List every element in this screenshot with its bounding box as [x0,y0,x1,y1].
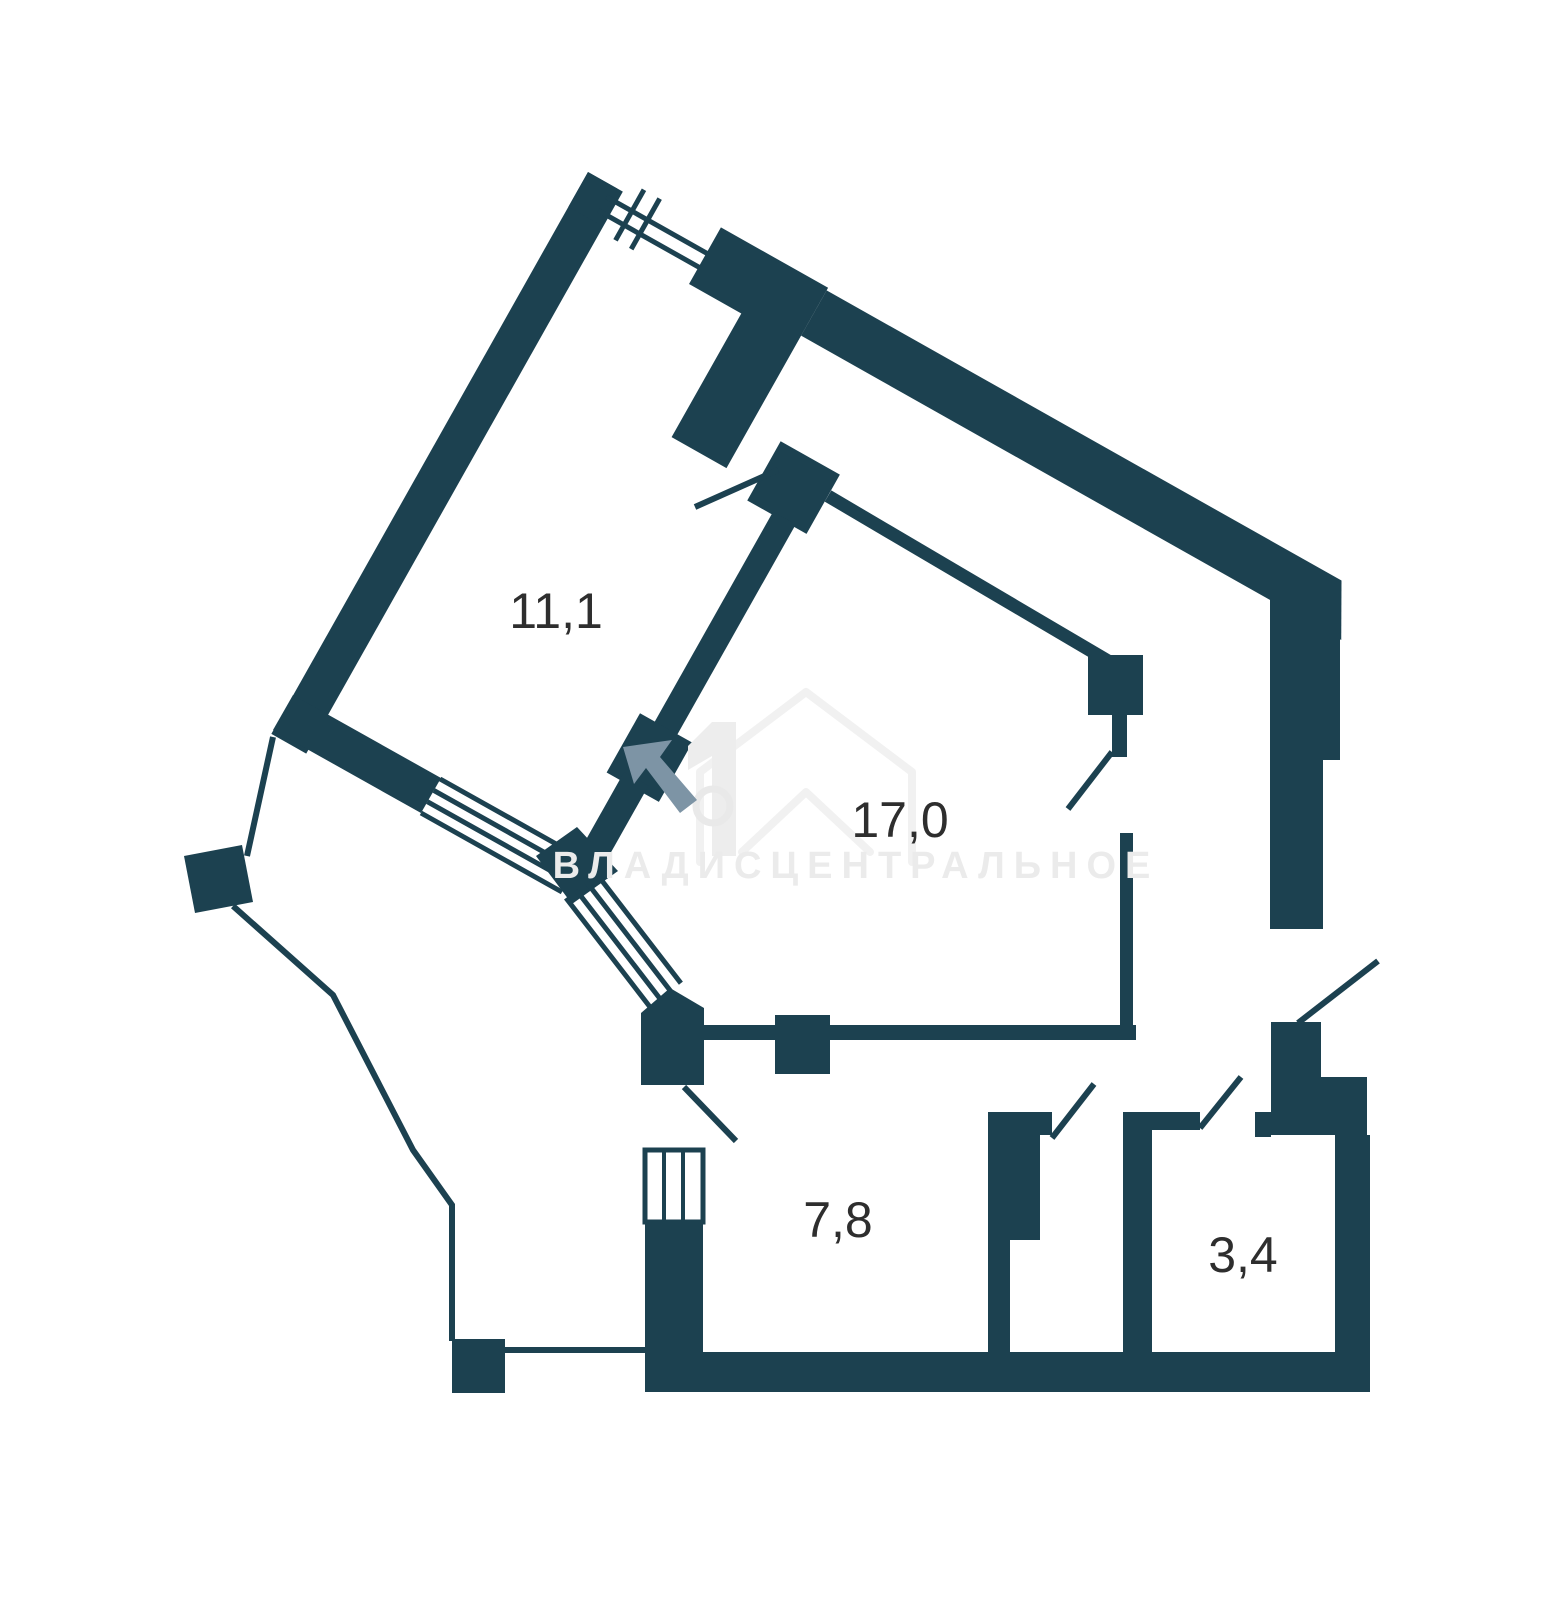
watermark-text: ВЛАДИСЦЕНТРАЛЬНОЕ [553,845,1160,887]
door-swing-line [1200,1077,1241,1128]
door-post-column [747,441,840,534]
vent-shaft-hatch [645,1150,703,1222]
wall-segment-hallway-thin [828,496,1120,668]
wall-segment-south-thin [700,1025,1136,1040]
floor-plan-drawing: ВЛАДИСЦЕНТРАЛЬНОЕ 11,1 17,0 7,8 3,4 [0,0,1544,1600]
door-swing-line-entrance [1298,961,1378,1023]
wall-segment-left-of-3-4 [1123,1130,1152,1354]
wall-segment-right-of-3-4 [1335,1135,1370,1375]
wall-segment-left-outer [271,172,622,754]
balcony-column [452,1339,505,1393]
wall-segment-bottom-outer [645,1352,1370,1392]
wall-segment-room-divider [650,512,795,743]
wall-segment-entrance-block [1321,1077,1367,1135]
door-jamb [1040,1112,1052,1135]
balcony-edge-line [233,906,452,1341]
door-post-column [1088,655,1143,715]
wall-segment-left-of-7-8 [645,1222,703,1353]
balcony-column [184,845,253,913]
wall-segment-shaft-thin [988,1240,1010,1354]
wall-segment-entry-block [619,227,828,468]
door-swing-line [1068,752,1112,809]
room-area-label-17-0: 17,0 [851,792,948,848]
room-area-label-3-4: 3,4 [1208,1227,1278,1283]
wall-segment-bay-upper [273,695,441,813]
wall-segment-stub [1112,712,1127,757]
room-area-label-11-1: 11,1 [509,583,603,639]
wall-segment-entrance-block [1271,1022,1321,1135]
bay-corner-column [641,988,704,1085]
floor-plan-page: ВЛАДИСЦЕНТРАЛЬНОЕ 11,1 17,0 7,8 3,4 [0,0,1544,1600]
window-glazing-line [597,208,707,273]
door-swing-line [1052,1084,1094,1138]
column [775,1015,830,1074]
door-jamb [1255,1112,1271,1137]
wall-segment-right-outer [1270,583,1323,929]
room-area-label-7-8: 7,8 [803,1192,873,1248]
shaft-block [988,1112,1040,1240]
wall-segment-top-of-3-4 [1123,1112,1200,1130]
door-swing-line [684,1087,736,1141]
balcony-edge-line [247,737,273,856]
